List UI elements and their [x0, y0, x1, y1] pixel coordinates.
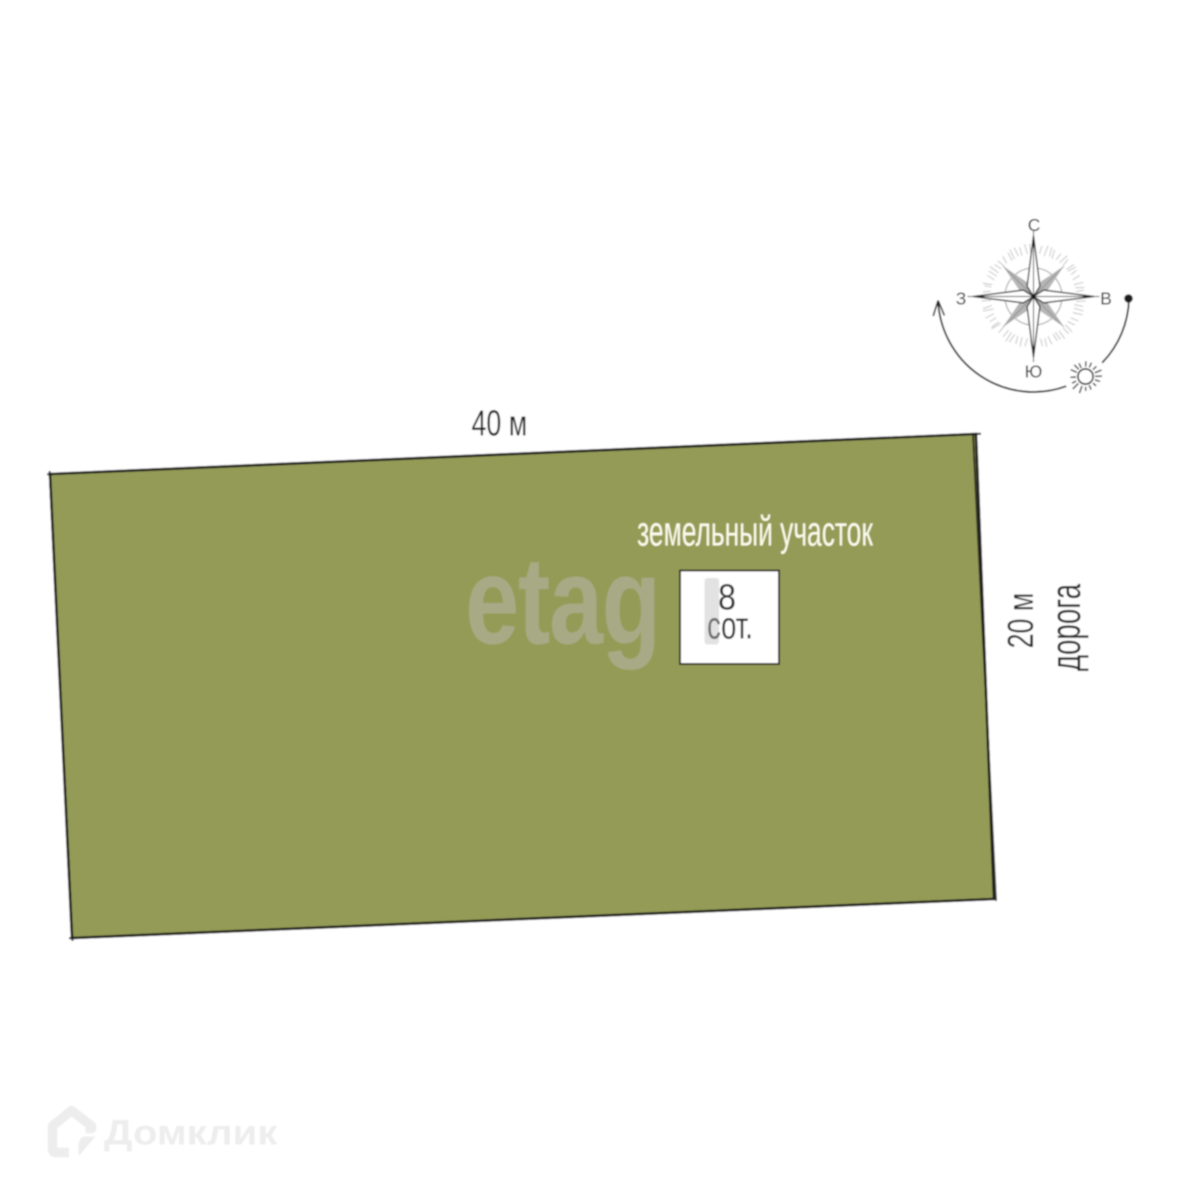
svg-text:В: В	[1100, 289, 1112, 309]
svg-text:земельный участок: земельный участок	[637, 508, 873, 555]
svg-text:40 м: 40 м	[471, 402, 527, 443]
svg-text:Ю: Ю	[1025, 362, 1043, 382]
svg-text:Домклик: Домклик	[104, 1113, 277, 1152]
svg-text:20 м: 20 м	[1000, 593, 1041, 649]
svg-text:etag: etag	[465, 531, 659, 670]
svg-text:дорога: дорога	[1042, 584, 1089, 671]
svg-text:З: З	[956, 289, 967, 309]
svg-text:С: С	[1028, 215, 1041, 235]
